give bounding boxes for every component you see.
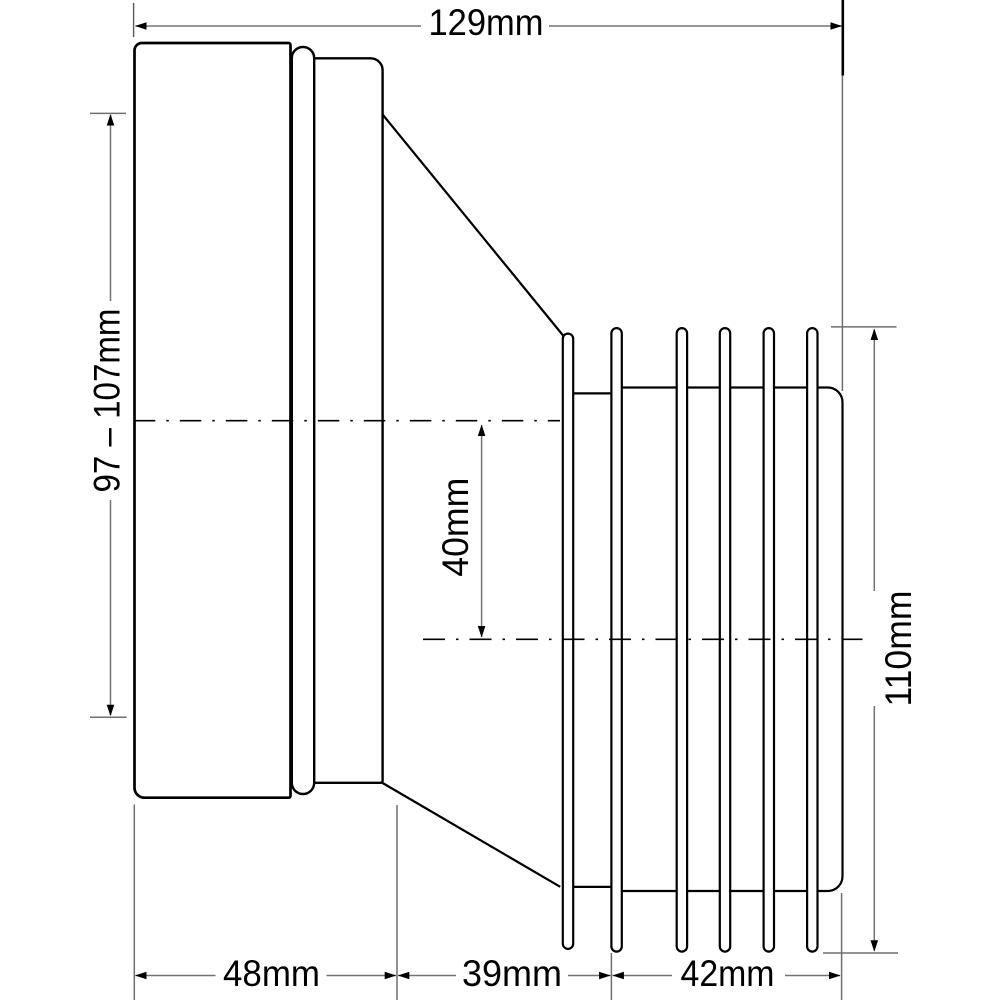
svg-text:40mm: 40mm — [435, 478, 476, 577]
svg-text:39mm: 39mm — [462, 953, 562, 994]
svg-text:48mm: 48mm — [223, 953, 320, 994]
svg-text:42mm: 42mm — [681, 953, 775, 994]
svg-text:110mm: 110mm — [878, 591, 919, 707]
svg-text:97 – 107mm: 97 – 107mm — [87, 309, 128, 493]
svg-text:129mm: 129mm — [429, 2, 544, 43]
